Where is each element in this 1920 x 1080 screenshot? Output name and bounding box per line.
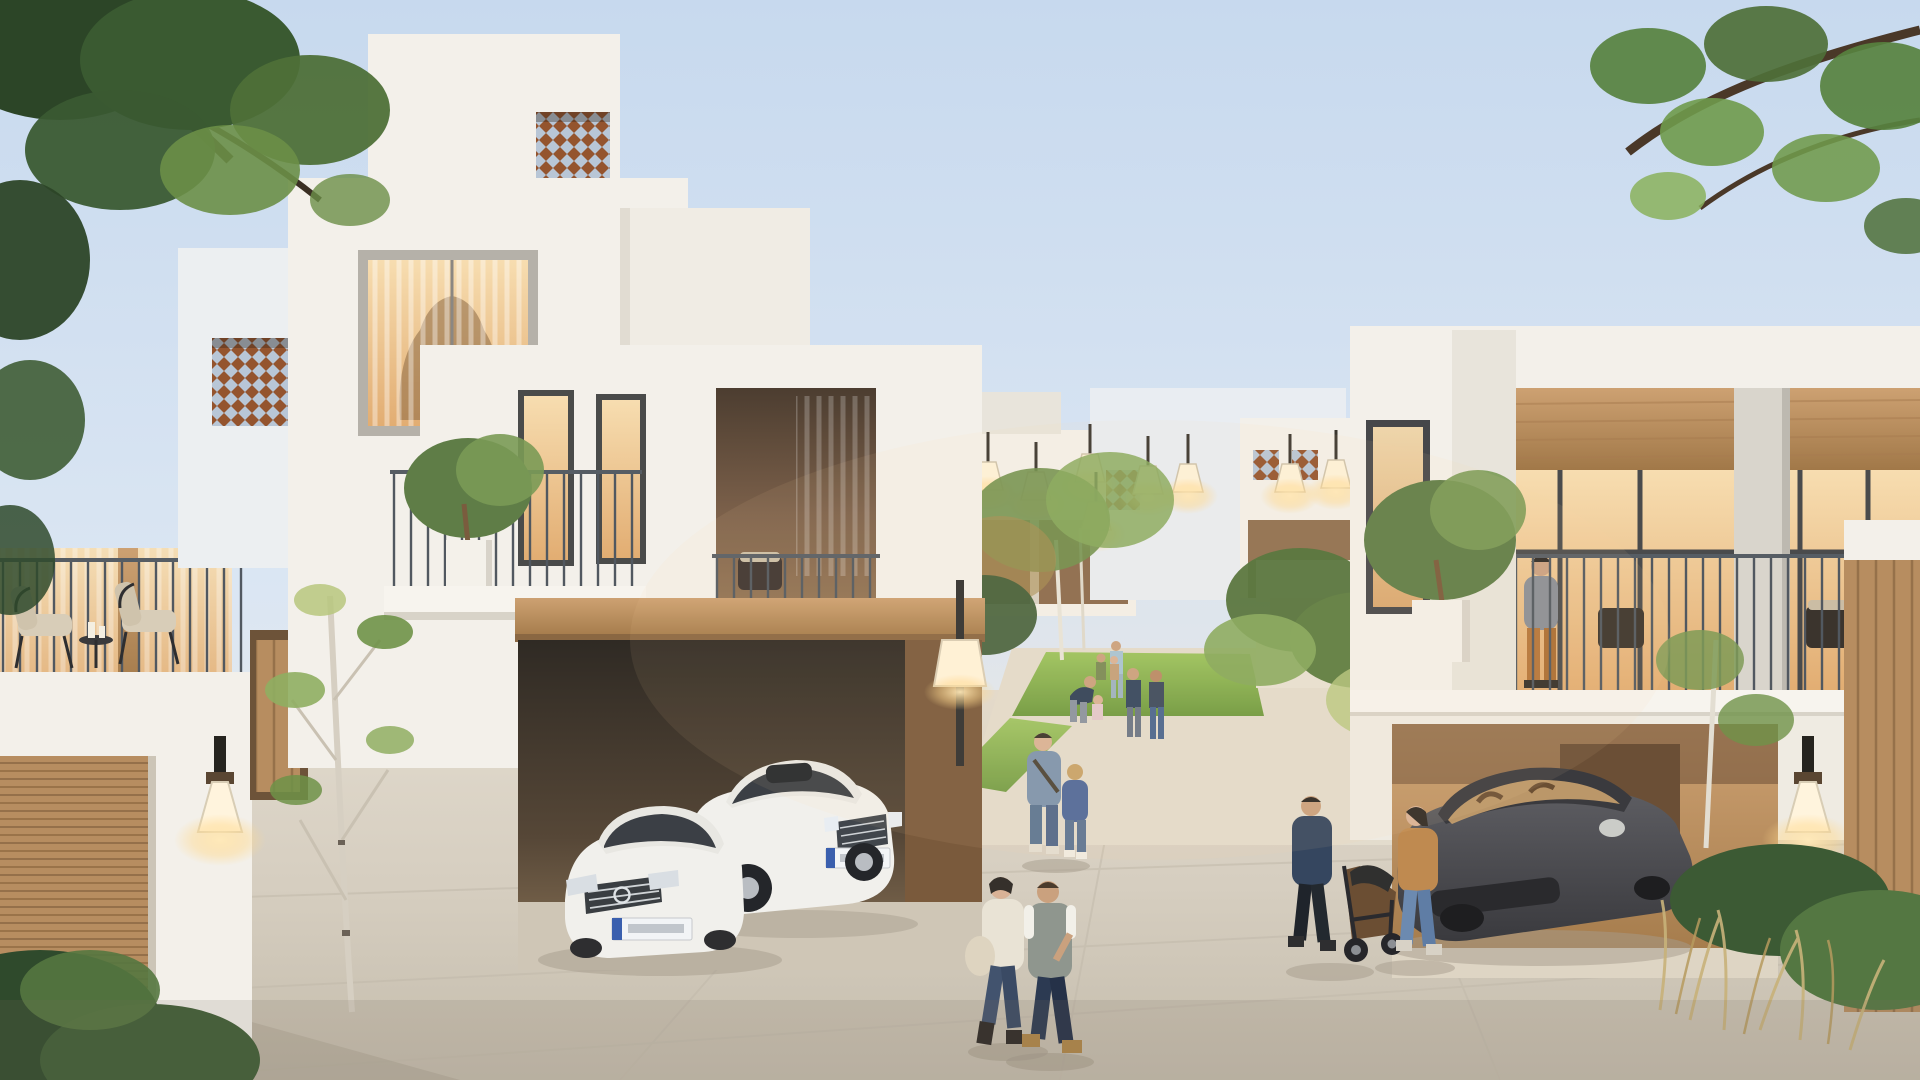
architectural-render — [0, 0, 1920, 1080]
mashrabiya-screen — [212, 338, 292, 426]
